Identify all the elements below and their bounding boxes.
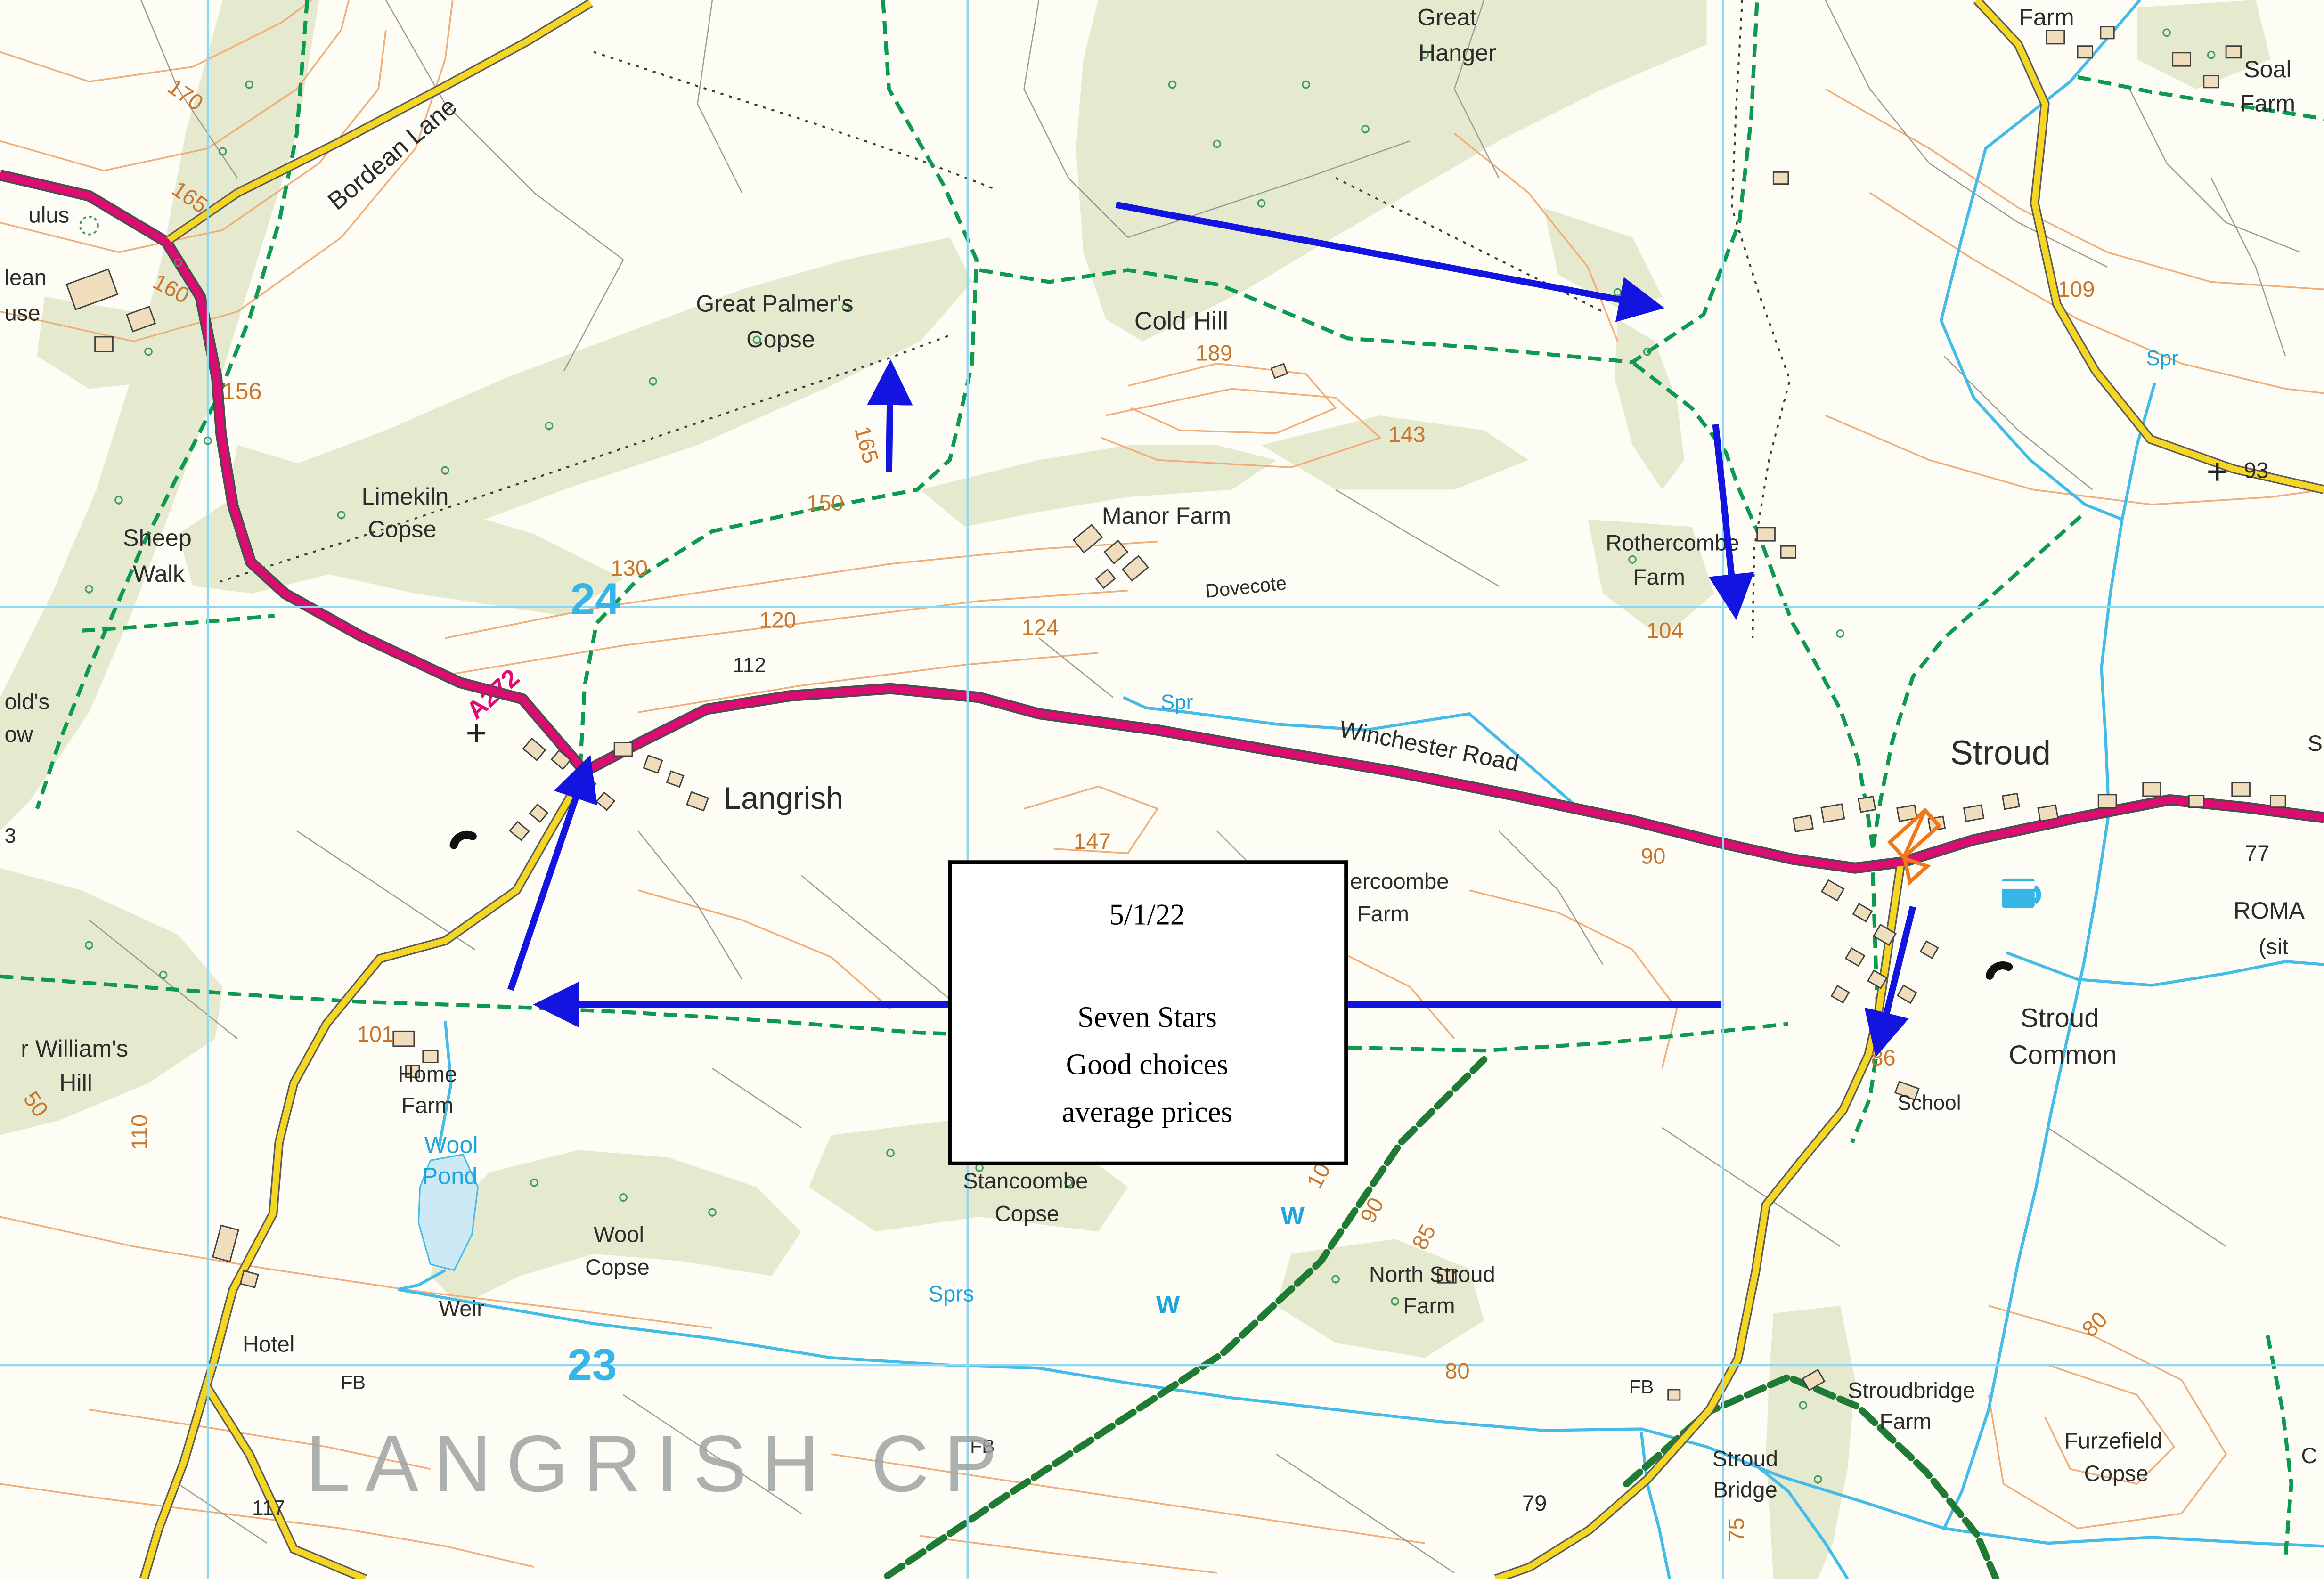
annotation-note: 5/1/22 Seven Stars Good choices average … [950,862,1346,1163]
map-label: 79 [1522,1491,1547,1516]
map-label: Bridge [1713,1477,1778,1502]
annotation-arrow [889,373,890,472]
map-label: Pond [422,1163,478,1189]
map-label: 189 [1195,341,1232,366]
building [614,743,632,756]
building [2002,793,2019,809]
note-date: 5/1/22 [1109,898,1185,931]
map-label: lean [4,265,46,290]
map-label: Hill [59,1069,92,1096]
map-label: Home [398,1062,457,1087]
map-label: Great [1417,4,1476,31]
map-label: ercoombe [1350,869,1449,894]
map-label: Farm [401,1093,453,1118]
map-label: FB [341,1371,366,1393]
map-label: Farm [1880,1409,1932,1434]
building [1793,815,1813,831]
building [2189,795,2204,807]
map-label: 150 [807,491,844,516]
building [2173,53,2191,66]
map-label: Soal [2244,56,2291,82]
map-label: Stroudbridge [1848,1378,1975,1403]
map-label: Stroud [1950,733,2051,772]
map-label: LANGRISH CP [306,1419,1012,1509]
map-label: 109 [2058,277,2095,302]
building [1781,546,1796,558]
map-label: Sheep [123,524,192,551]
map-label: Manor Farm [1102,502,1231,529]
building [2204,76,2219,88]
map-label: Sprs [929,1282,974,1307]
map-label: Common [2009,1041,2117,1070]
map-label: Langrish [724,781,843,816]
map-label: Limekiln [362,483,449,510]
map-label: 112 [733,654,766,677]
map-label: Weir [439,1296,484,1321]
map-label: ulus [29,203,70,228]
map-label: 156 [222,377,261,404]
building [1859,797,1876,812]
building [1668,1390,1680,1400]
map-label: 75 [1724,1517,1749,1542]
map-label: North Stroud [1369,1262,1495,1287]
note-line-3: average prices [1062,1095,1232,1128]
map-label: (sit [2259,934,2288,959]
map-label: Farm [1403,1294,1455,1319]
map-label: 117 [252,1497,285,1520]
map-label: 93 [2244,458,2269,483]
map-label: W [1280,1202,1305,1230]
map-label: Stancoombe [963,1169,1088,1194]
map-label: 23 [567,1340,617,1390]
building [2232,783,2250,796]
map-label: 101 [357,1022,394,1047]
building [2098,795,2116,808]
map-label: Copse [585,1255,650,1280]
map-label: Copse [368,515,437,542]
building [1821,804,1844,822]
map-label: Farm [1633,565,1685,590]
map-label: FB [1629,1376,1654,1398]
map-label: 77 [2245,841,2270,866]
map-label: Hotel [243,1332,294,1357]
map-label: ow [4,722,33,747]
building [1964,805,1984,821]
map-label: 104 [1647,619,1684,643]
map-label: S [2308,731,2323,756]
building [2078,46,2093,58]
map-label: 86 [1871,1046,1896,1071]
map-label: Copse [746,326,815,352]
building [95,337,113,352]
building [2143,783,2161,796]
map-label: Farm [2019,4,2074,31]
map-label: Hanger [1419,39,1496,66]
map-label: 110 [127,1115,152,1150]
map-label: r William's [21,1035,128,1062]
map-label: 147 [1074,829,1111,854]
map-label: Great Palmer's [696,290,853,317]
map-label: Spr [2146,347,2178,370]
map-label: Spr [1161,691,1193,714]
map-label: 3 [4,824,16,847]
map-label: Rothercombe [1606,531,1739,556]
map-label: Stroud [1712,1446,1778,1471]
map-label: Wool [424,1131,478,1158]
map-canvas: ulusleanuseBordean LaneGreat Palmer'sCop… [0,0,2324,1579]
map-label: 90 [1641,844,1666,869]
building [2047,31,2064,44]
building [2226,46,2241,58]
map-label: 124 [1022,615,1059,640]
building [2271,795,2286,807]
building [393,1031,414,1046]
map-label: C [2301,1443,2317,1468]
map-label: Copse [2084,1461,2149,1486]
building [423,1050,438,1062]
building [1757,528,1775,541]
building [2038,805,2058,821]
building [240,1271,258,1288]
map-label: use [4,301,40,326]
map-label: Farm [1357,902,1409,927]
map-label: W [1156,1291,1180,1319]
map-label: 143 [1388,423,1426,448]
map-label: Cold Hill [1134,307,1228,335]
map-label: Furzefield [2064,1428,2162,1453]
map-label: 80 [1445,1359,1470,1384]
map-label: ROMA [2234,897,2305,924]
map-label: 24 [571,574,620,624]
map-label: old's [4,690,49,715]
map-label: Wool [594,1222,644,1247]
map-label: Copse [995,1201,1060,1226]
note-line-1: Seven Stars [1077,1001,1217,1034]
map-label: Farm [2240,90,2296,116]
building [1773,172,1788,184]
building [2101,27,2114,39]
pub-mug-icon [2002,879,2039,908]
note-line-2: Good choices [1066,1048,1229,1081]
map-label: Stroud [2021,1003,2099,1033]
map-label: Walk [133,560,185,587]
map-label: 120 [759,608,796,633]
map-generated-layers: ulusleanuseBordean LaneGreat Palmer'sCop… [0,0,2324,1579]
map-label: School [1898,1091,1961,1115]
